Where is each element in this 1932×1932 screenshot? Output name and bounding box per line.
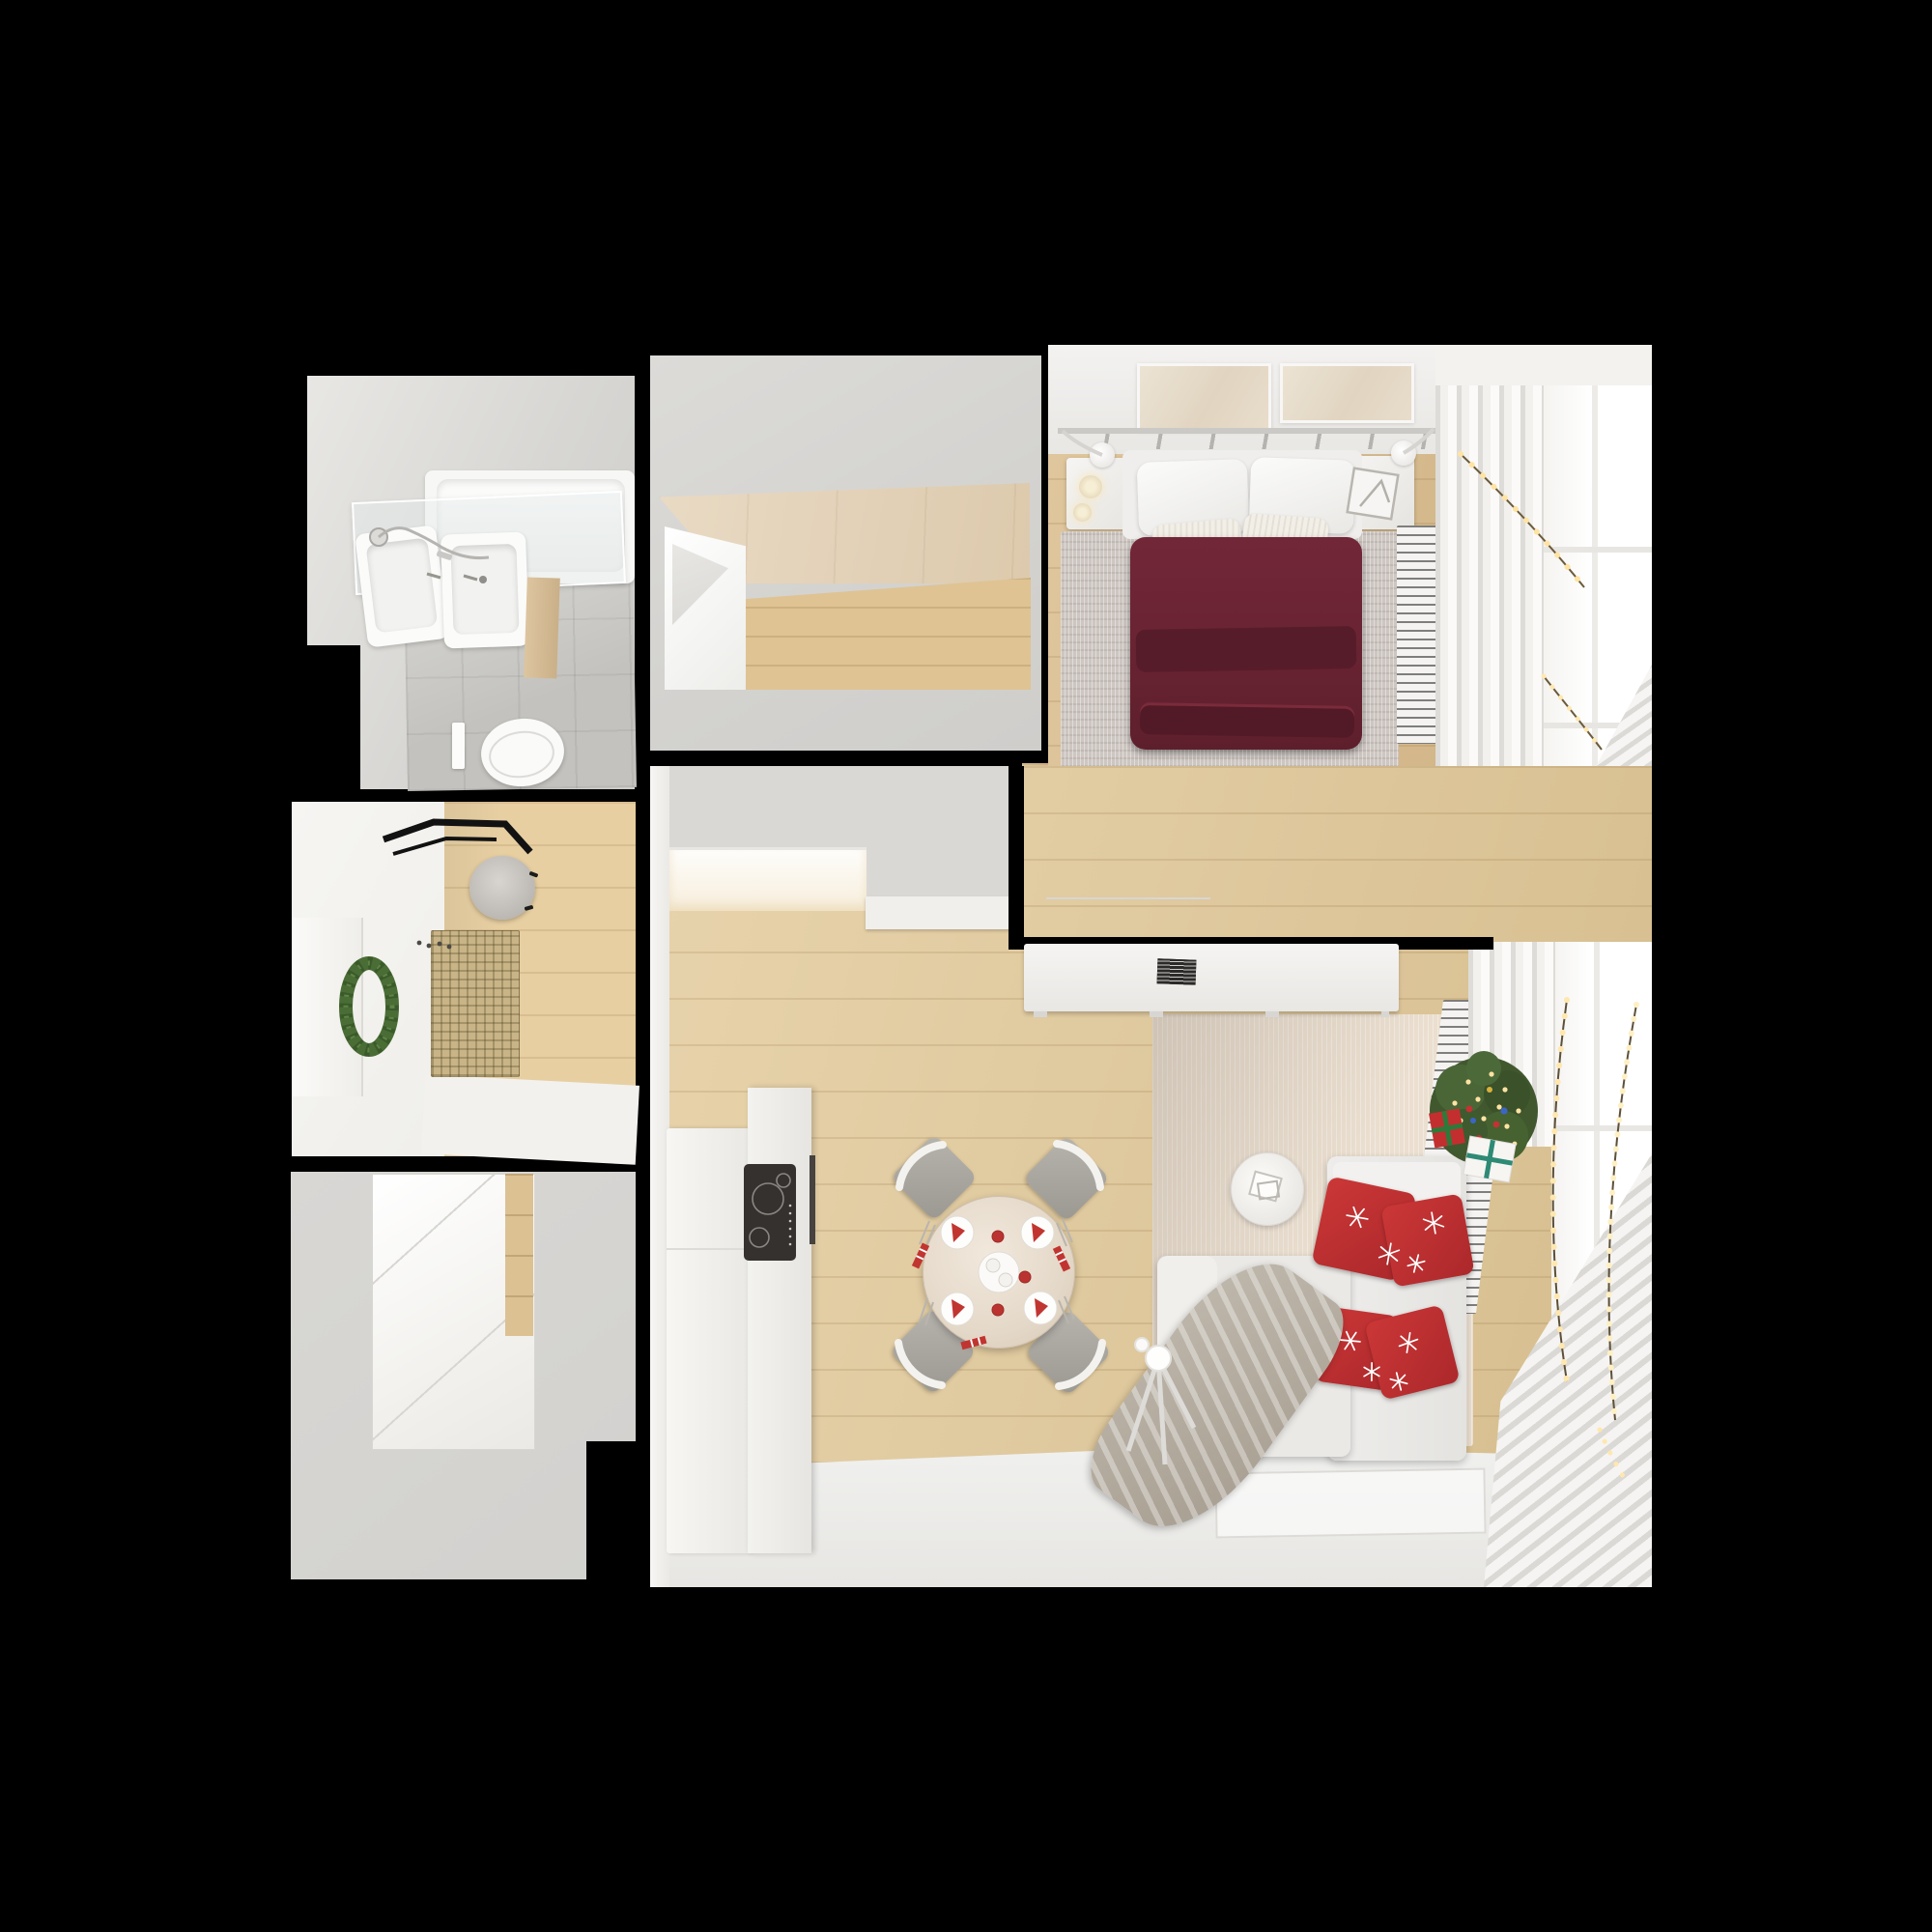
wall-shelf: [866, 896, 1010, 929]
maroon-duvet: [1130, 537, 1362, 750]
wardrobe-closet-unit: [665, 526, 746, 690]
oven-handle: [810, 1155, 815, 1244]
wall-lamp-right: [1391, 440, 1416, 466]
wall-gap-vertical: [1009, 766, 1024, 946]
kitchen-counter-inner: [748, 1088, 811, 1553]
bedroom-curtain-rail: [1435, 345, 1652, 385]
candle-large: [1079, 475, 1102, 498]
hall-white-wedge: [421, 1074, 639, 1165]
side-table: [1231, 1152, 1304, 1226]
kitchen-counter-outer: [667, 1128, 752, 1553]
snowflake-pillow-2: [1380, 1193, 1474, 1287]
entry-door: [292, 918, 363, 1096]
doormat: [431, 930, 520, 1077]
dining-table: [923, 1196, 1075, 1349]
living-curtains: [1468, 942, 1555, 1147]
bathroom-wall-notch: [307, 645, 360, 789]
candle-small: [1073, 503, 1092, 522]
storage-wall-notch: [586, 1441, 636, 1579]
white-floor-rug: [1214, 1468, 1486, 1539]
wall-art-panel-left: [1137, 363, 1271, 431]
wall-lamp-left: [1090, 442, 1115, 468]
flush-plate: [452, 723, 465, 769]
illuminated-niche: [669, 847, 867, 911]
sideboard: [1024, 944, 1399, 1011]
black-decor-object: [1157, 958, 1197, 984]
round-pouf: [469, 856, 535, 920]
wall-art-panel-right: [1280, 363, 1414, 423]
headboard-rail: [1058, 428, 1444, 449]
vanity-wood-cabinet: [524, 577, 560, 678]
sink-mirror-reflection: [355, 525, 449, 647]
bathroom-sink: [440, 532, 529, 649]
storage-wood-panel: [505, 1174, 533, 1336]
cooktop: [744, 1164, 796, 1261]
apartment-floorplan-render: [0, 0, 1932, 1932]
